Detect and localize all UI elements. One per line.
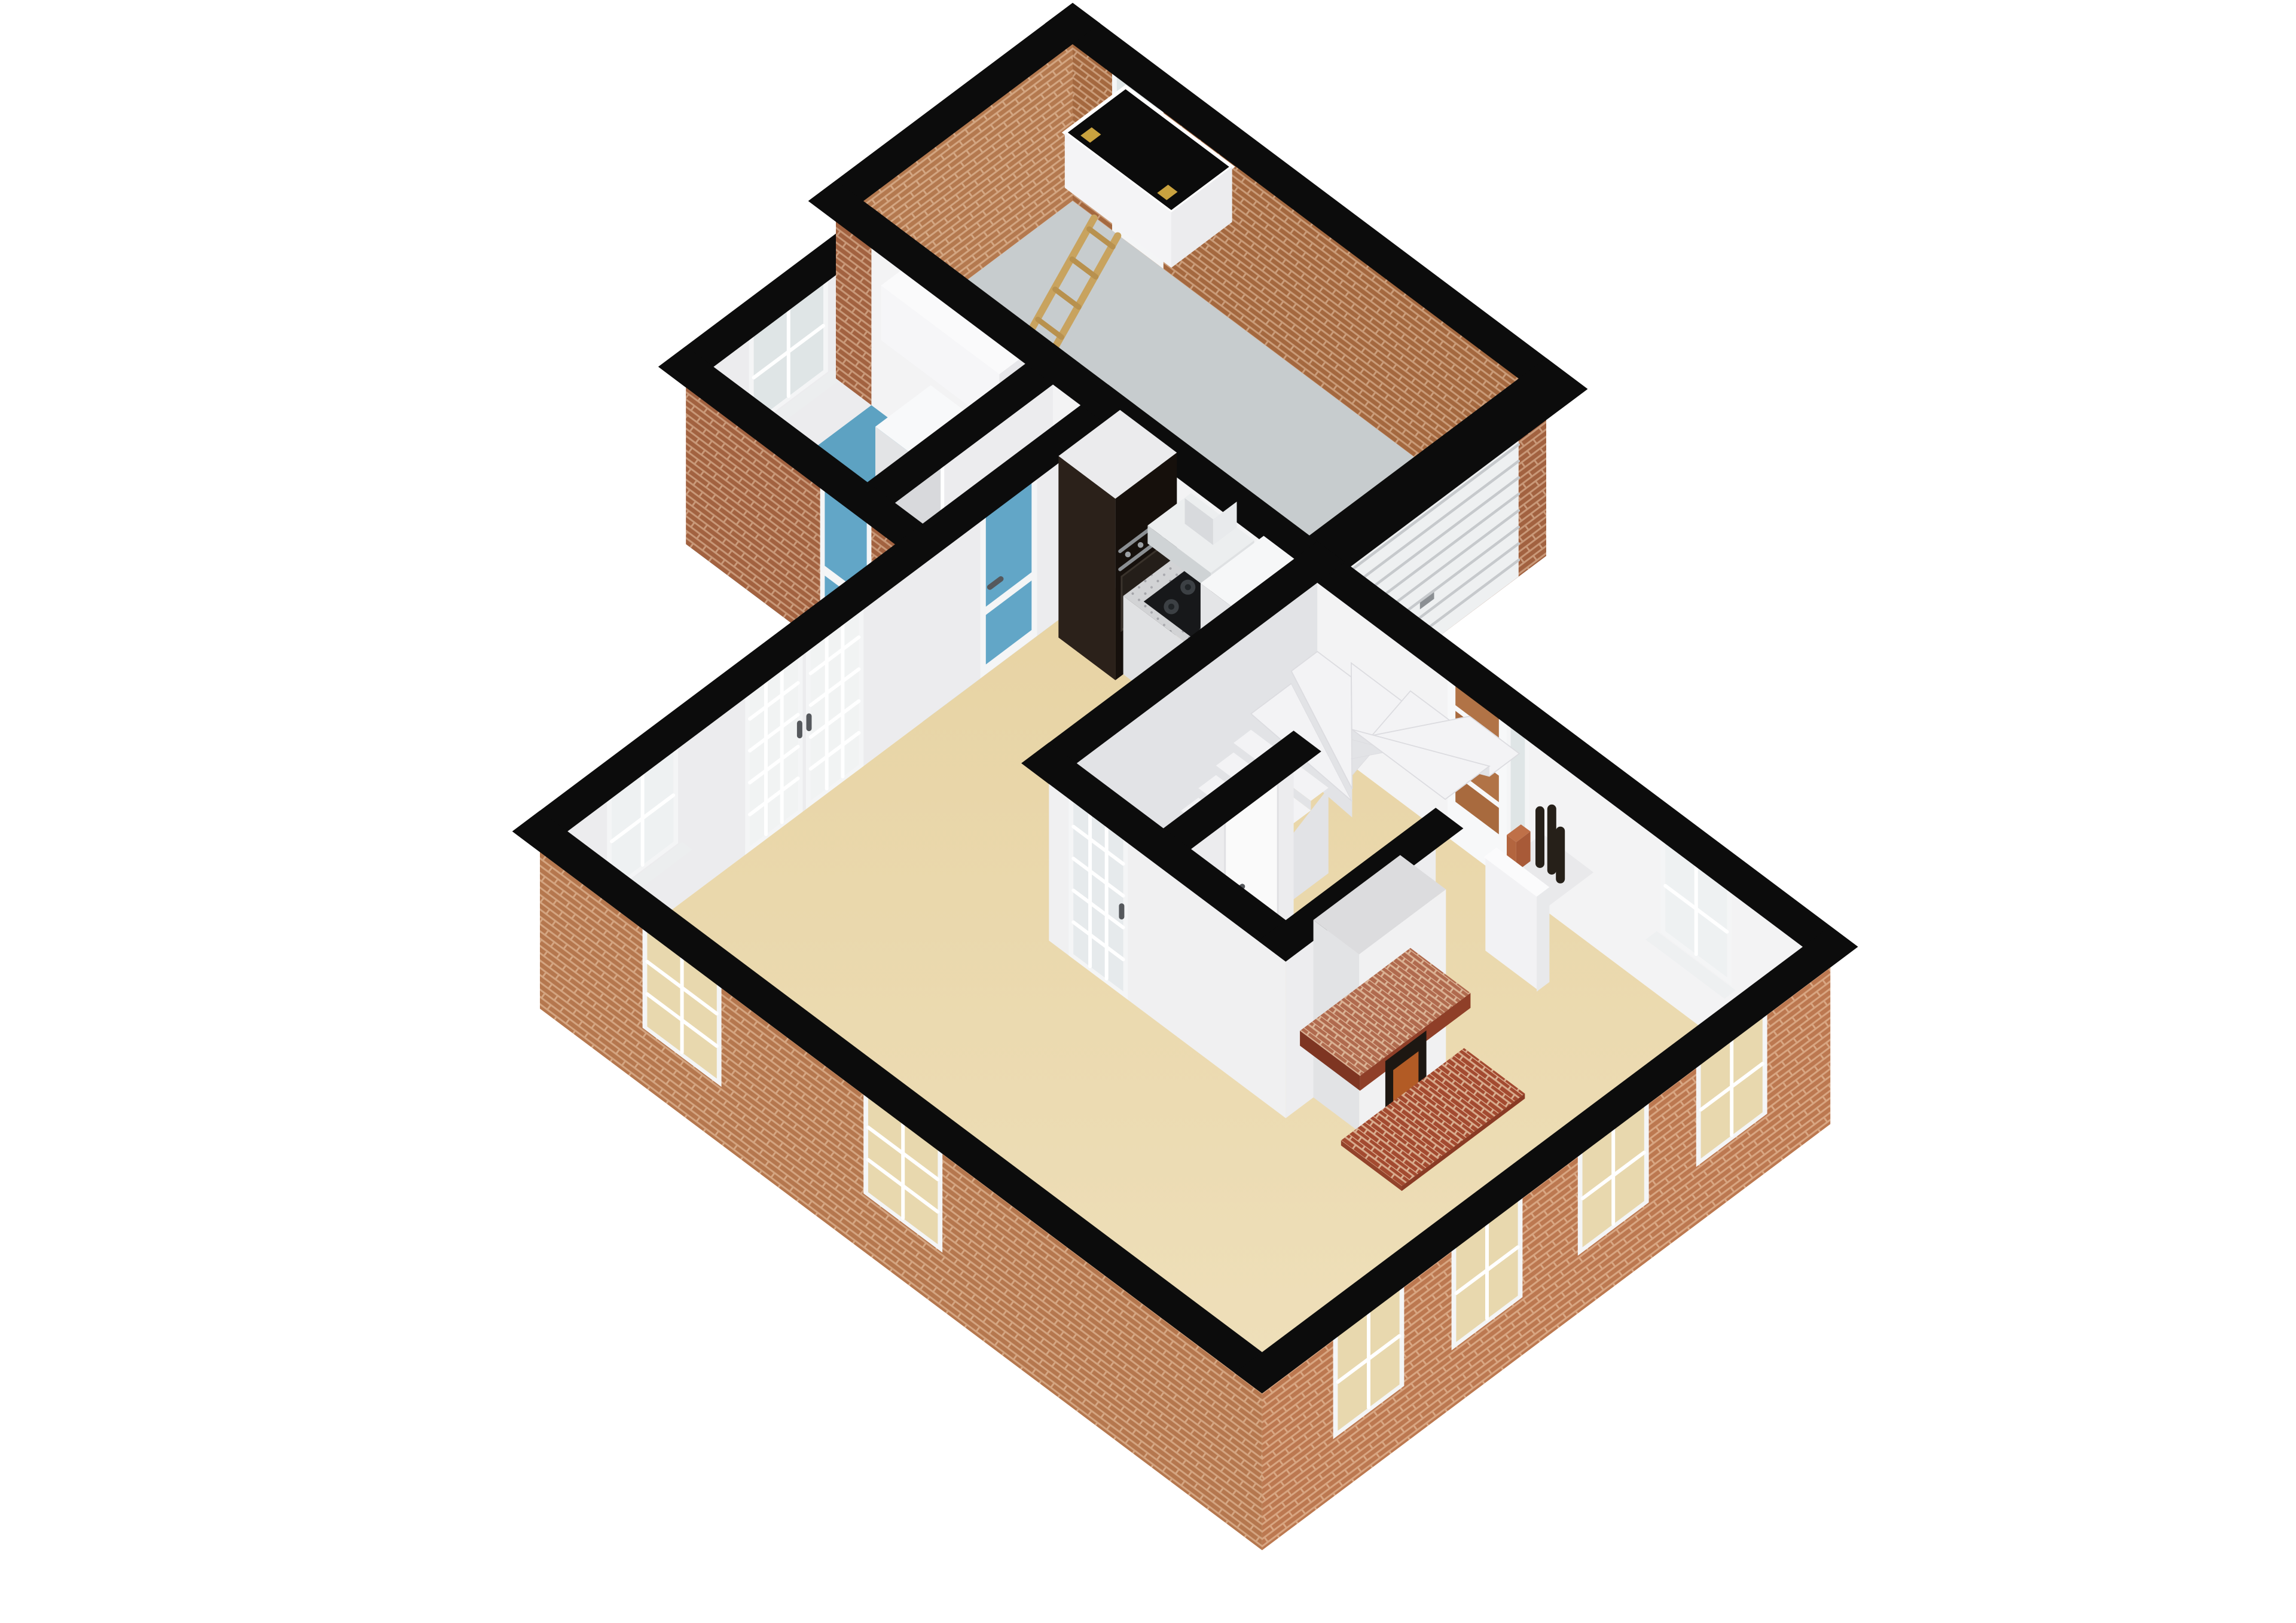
floorplan-stage [0, 0, 2296, 1623]
isometric-floorplan-render [0, 0, 2296, 1623]
